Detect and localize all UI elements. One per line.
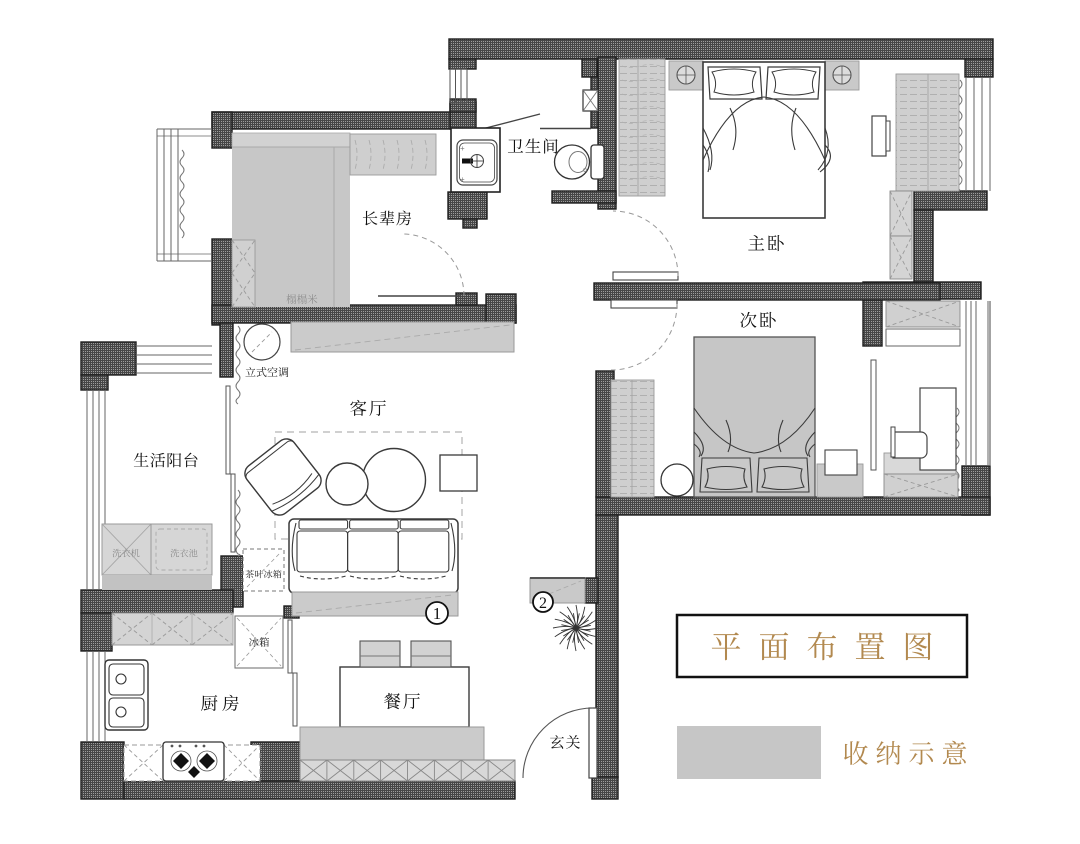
svg-text:+: +: [460, 144, 465, 153]
svg-text:+: +: [460, 175, 465, 184]
svg-text:1: 1: [433, 604, 442, 623]
svg-text:2: 2: [539, 595, 547, 612]
